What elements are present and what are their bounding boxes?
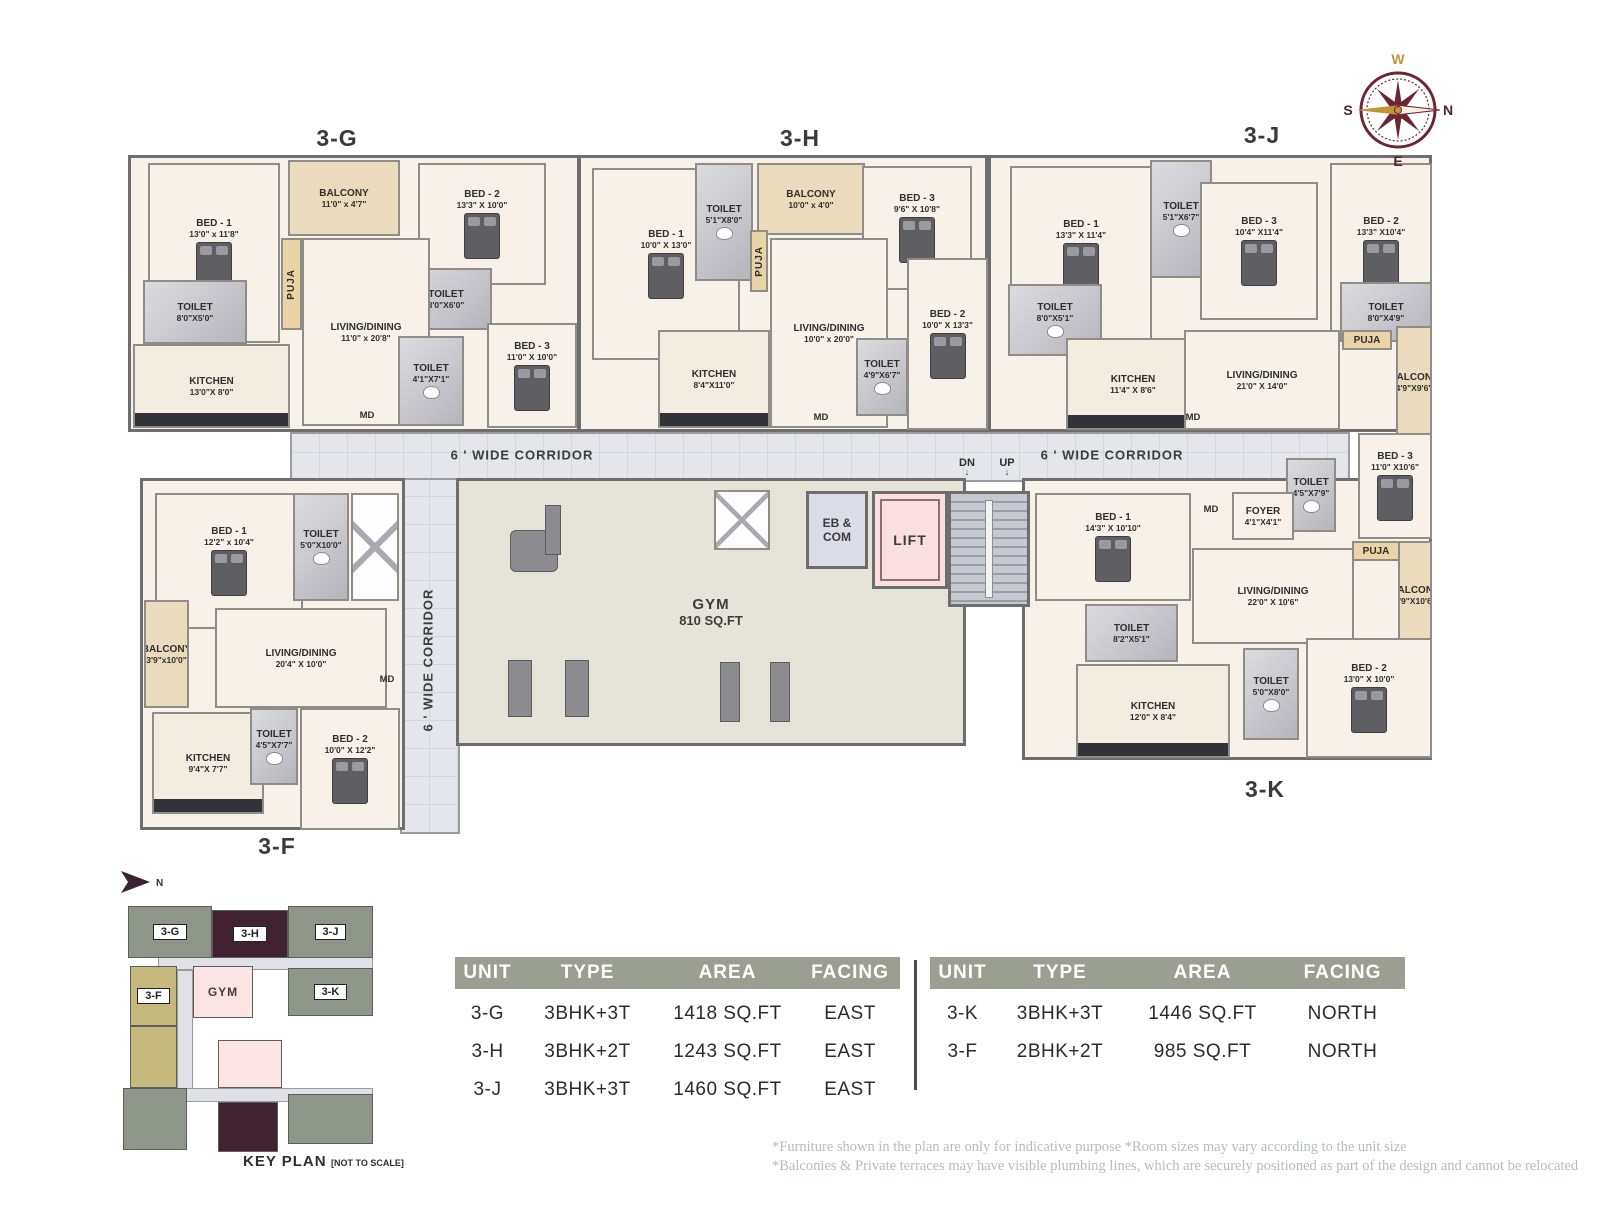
room-name: BALCONY <box>786 189 835 200</box>
room-dimension: 4'9"X9'6" <box>1396 383 1432 393</box>
key-plan-block-label: 3-H <box>233 926 267 942</box>
key-plan-block <box>130 1026 177 1088</box>
unit-cell: 3BHK+3T <box>520 1003 655 1025</box>
room-dimension: 8'4"X11'0" <box>694 380 735 390</box>
key-plan-block-gym: GYM <box>193 966 253 1018</box>
toilet-wc-icon <box>874 382 891 395</box>
room-dimension: 8'2"X5'1" <box>1113 634 1150 644</box>
bed-3-3-J: BED - 310'4" X11'4" <box>1200 182 1318 320</box>
room-name: PUJA <box>1354 335 1381 346</box>
unit-label-3-G: 3-G <box>316 125 357 152</box>
compass-center-icon <box>1394 106 1401 113</box>
bed-icon <box>1063 243 1099 289</box>
unit-label-3-H: 3-H <box>780 125 820 152</box>
unit-table-right: UNITTYPEAREAFACING 3-K3BHK+3T1446 SQ.FTN… <box>930 957 1405 1071</box>
unit-cell: 3-H <box>455 1041 520 1063</box>
key-plan-block <box>218 1040 282 1088</box>
balcony-3-K: BALCONY4'9"X10'6" <box>1398 541 1432 649</box>
compass-east-label: E <box>1393 153 1402 169</box>
unit-row-3-j: 3-J3BHK+3T1460 SQ.FTEAST <box>455 1071 900 1109</box>
room-dimension: 11'0" X 10'0" <box>507 352 557 362</box>
md-3-H: MD <box>806 408 836 426</box>
room-name: BED - 3 <box>899 193 935 204</box>
room-name: LIVING/DINING <box>330 322 401 333</box>
room-name: MD <box>1186 412 1201 423</box>
bed-icon <box>332 758 368 804</box>
staircase <box>948 491 1030 607</box>
key-plan-block <box>218 1102 278 1152</box>
room-dimension: 11'0" x 20'8" <box>341 333 390 343</box>
room-name: MD <box>360 410 375 421</box>
room-name: BED - 3 <box>1377 451 1413 462</box>
key-plan-block <box>123 1088 187 1150</box>
unit-cell: 1446 SQ.FT <box>1125 1003 1280 1025</box>
toilet-3-K: TOILET5'0"X8'0" <box>1243 648 1299 740</box>
toilet-3-G: TOILET4'1"X7'1" <box>398 336 464 426</box>
room-name: KITCHEN <box>1111 374 1155 385</box>
room-dimension: 4'1"X7'1" <box>413 374 450 384</box>
column-header-type: TYPE <box>995 962 1125 984</box>
balcony-3-F: BALCONY3'9"x10'0" <box>144 600 189 708</box>
toilet-3-K: TOILET8'2"X5'1" <box>1085 604 1178 662</box>
key-plan-block-label: 3-F <box>137 988 170 1004</box>
room-name: MD <box>1204 504 1219 515</box>
unit-cell: 985 SQ.FT <box>1125 1041 1280 1063</box>
compass-south-label: S <box>1343 102 1352 118</box>
room-dimension: 10'0" X 12'2" <box>325 745 376 755</box>
md-3-G: MD <box>352 406 382 424</box>
room-dimension: 13'0"X 8'0" <box>190 387 234 397</box>
key-plan-subtitle: [NOT TO SCALE] <box>331 1158 404 1168</box>
room-dimension: 21'0" X 14'0" <box>1237 381 1288 391</box>
puja-3-J: PUJA <box>1342 330 1392 350</box>
balcony-3-G: BALCONY11'0" x 4'7" <box>288 160 400 236</box>
room-name: BED - 1 <box>211 526 247 537</box>
compass-west-label: W <box>1391 51 1405 67</box>
toilet-wc-icon <box>716 227 733 240</box>
room-dimension: 5'0"X10'0" <box>300 540 341 550</box>
room-dimension: 5'0"X8'0" <box>1253 687 1290 697</box>
column-header-unit: UNIT <box>930 962 995 984</box>
puja-3-H: PUJA <box>750 230 768 292</box>
gym-equipment-icon <box>508 660 532 717</box>
toilet-3-H: TOILET4'9"X6'7" <box>856 338 908 416</box>
lift-room: LIFT <box>872 491 948 589</box>
room-name: TOILET <box>1163 201 1198 212</box>
kitchen-3-G: KITCHEN13'0"X 8'0" <box>133 344 290 428</box>
room-dimension: 8'0"X6'0" <box>428 300 465 310</box>
unit-cell: 3-K <box>930 1003 995 1025</box>
unit-cell: NORTH <box>1280 1003 1405 1025</box>
room-dimension: 4'1"X4'1" <box>1245 517 1282 527</box>
column-header-area: AREA <box>1125 962 1280 984</box>
bed-icon <box>930 333 966 379</box>
toilet-wc-icon <box>313 552 330 565</box>
room-dimension: 13'3" X 11'4" <box>1056 230 1106 240</box>
room-name: KITCHEN <box>1131 701 1175 712</box>
room-name: TOILET <box>303 529 338 540</box>
foyer-3-K: FOYER4'1"X4'1" <box>1232 492 1294 540</box>
gym-equipment-icon <box>720 662 740 722</box>
bed-icon <box>899 217 935 263</box>
puja-3-G: PUJA <box>281 238 302 330</box>
room-dimension: 10'0" X 13'3" <box>922 320 973 330</box>
md-3-F: MD <box>372 670 402 688</box>
key-plan-block-label: 3-K <box>314 984 348 1000</box>
balcony-3-J: BALCONY4'9"X9'6" <box>1396 326 1432 438</box>
puja-3-K: PUJA <box>1352 541 1400 561</box>
key-plan-block-3-g: 3-G <box>128 906 212 958</box>
key-plan-block-label: 3-G <box>153 924 187 940</box>
toilet-wc-icon <box>423 386 440 399</box>
stairs-down-label: DN <box>959 457 975 475</box>
room-name: BED - 1 <box>648 229 684 240</box>
room-name: FOYER <box>1246 506 1280 517</box>
room-dimension: 11'4" X 8'6" <box>1110 385 1156 395</box>
bed-icon <box>1241 240 1277 286</box>
md-3-K: MD <box>1196 500 1226 518</box>
room-dimension: 8'0"X5'1" <box>1037 313 1074 323</box>
unit-label-3-K: 3-K <box>1245 776 1285 803</box>
room-dimension: 10'0" x 20'0" <box>804 334 854 344</box>
room-name: BALCONY <box>1398 585 1432 596</box>
room-dimension: 8'0"X5'0" <box>177 313 214 323</box>
bed-icon <box>1095 536 1131 582</box>
room-name: PUJA <box>754 246 765 277</box>
living-dining-3-K: LIVING/DINING22'0" X 10'6" <box>1192 548 1354 644</box>
room-dimension: 13'0" X 10'0" <box>1344 674 1395 684</box>
room-name: TOILET <box>1037 302 1072 313</box>
bed-icon <box>514 365 550 411</box>
unit-row-3-h: 3-H3BHK+2T1243 SQ.FTEAST <box>455 1033 900 1071</box>
room-dimension: 4'5"X7'7" <box>256 740 293 750</box>
room-name: MD <box>380 674 395 685</box>
toilet-wc-icon <box>1047 325 1064 338</box>
room-dimension: 4'5"X7'9" <box>1293 488 1330 498</box>
room-dimension: 12'2" x 10'4" <box>204 537 254 547</box>
room-name: LIVING/DINING <box>1226 370 1297 381</box>
md-3-J: MD <box>1178 408 1208 426</box>
room-name: TOILET <box>1253 676 1288 687</box>
room-dimension: 3'9"x10'0" <box>146 655 186 665</box>
room-name: TOILET <box>1368 302 1403 313</box>
bed-2-3-F: BED - 210'0" X 12'2" <box>300 708 400 830</box>
unit-table-left-body: 3-G3BHK+3T1418 SQ.FTEAST3-H3BHK+2T1243 S… <box>455 989 900 1109</box>
room-dimension: 20'4" X 10'0" <box>276 659 327 669</box>
room-name: TOILET <box>428 289 463 300</box>
toilet-wc-icon <box>1263 699 1280 712</box>
bed-icon <box>1363 240 1399 286</box>
bed-2-3-K: BED - 213'0" X 10'0" <box>1306 638 1432 758</box>
room-dimension: 14'3" X 10'10" <box>1085 523 1141 533</box>
room-name: TOILET <box>177 302 212 313</box>
unit-cell: 3-F <box>930 1041 995 1063</box>
unit-cell: 3-J <box>455 1079 520 1101</box>
gym-equipment-icon <box>770 662 790 722</box>
room-name: BED - 2 <box>1351 663 1387 674</box>
room-dimension: 13'3" X 10'0" <box>457 200 508 210</box>
bed-icon <box>1351 687 1387 733</box>
key-plan-block <box>177 970 193 1096</box>
unit-cell: 1418 SQ.FT <box>655 1003 800 1025</box>
room-name: LIVING/DINING <box>793 323 864 334</box>
key-plan-block-3-f: 3-F <box>130 966 177 1026</box>
room-name: TOILET <box>706 204 741 215</box>
unit-cell: 1243 SQ.FT <box>655 1041 800 1063</box>
room-name: PUJA <box>1363 546 1390 557</box>
key-plan-caption: KEY PLAN [NOT TO SCALE] <box>243 1153 404 1171</box>
unit-row-3-f: 3-F2BHK+2T985 SQ.FTNORTH <box>930 1033 1405 1071</box>
room-name: TOILET <box>1114 623 1149 634</box>
unit-label-3-J: 3-J <box>1244 122 1280 149</box>
unit-cell: NORTH <box>1280 1041 1405 1063</box>
shaft-3-F <box>351 493 399 601</box>
room-name: BED - 3 <box>1241 216 1277 227</box>
key-plan-block-label: 3-J <box>315 924 347 940</box>
stairs-up-label: UP <box>999 457 1014 475</box>
room-name: MD <box>814 412 829 423</box>
room-dimension: 5'1"X8'0" <box>706 215 743 225</box>
toilet-wc-icon <box>1303 500 1320 513</box>
bed-icon <box>648 253 684 299</box>
room-name: BED - 1 <box>196 218 232 229</box>
room-name: LIVING/DINING <box>265 648 336 659</box>
balcony-3-H: BALCONY10'0" x 4'0" <box>757 163 865 235</box>
unit-cell: 3BHK+3T <box>520 1079 655 1101</box>
floor-plan-canvas: W E S N 6 ' WIDE CORRIDOR 6 ' WIDE CORRI… <box>0 0 1600 1223</box>
unit-row-3-g: 3-G3BHK+3T1418 SQ.FTEAST <box>455 995 900 1033</box>
bed-2-3-H: BED - 210'0" X 13'3" <box>907 258 988 430</box>
kitchen-3-K: KITCHEN12'0" X 8'4" <box>1076 664 1230 758</box>
room-name: BED - 2 <box>332 734 368 745</box>
room-name: BED - 2 <box>1363 216 1399 227</box>
kitchen-3-F: KITCHEN9'4"X 7'7" <box>152 712 264 814</box>
utility-shaft <box>714 490 770 550</box>
room-name: TOILET <box>256 729 291 740</box>
room-name: PUJA <box>286 269 297 300</box>
gym-equipment-icon <box>565 660 589 717</box>
room-name: BALCONY <box>144 644 189 655</box>
unit-label-3-F: 3-F <box>258 833 296 860</box>
disclaimer-line-1: *Furniture shown in the plan are only fo… <box>772 1138 1578 1157</box>
room-dimension: 10'4" X11'4" <box>1235 227 1283 237</box>
bed-icon <box>1377 475 1413 521</box>
unit-cell: 3-G <box>455 1003 520 1025</box>
room-dimension: 11'0" X10'6" <box>1371 462 1419 472</box>
room-dimension: 22'0" X 10'6" <box>1248 597 1299 607</box>
room-name: BALCONY <box>1396 372 1432 383</box>
room-dimension: 8'0"X4'9" <box>1368 313 1405 323</box>
kitchen-3-H: KITCHEN8'4"X11'0" <box>658 330 770 428</box>
toilet-3-F: TOILET4'5"X7'7" <box>250 708 298 785</box>
room-name: KITCHEN <box>692 369 736 380</box>
disclaimer-notes: *Furniture shown in the plan are only fo… <box>772 1138 1578 1176</box>
key-plan-title: KEY PLAN <box>243 1153 327 1170</box>
toilet-wc-icon <box>1173 224 1190 237</box>
toilet-3-G: TOILET8'0"X5'0" <box>143 280 247 344</box>
room-name: BED - 2 <box>930 309 966 320</box>
unit-cell: EAST <box>800 1041 900 1063</box>
room-name: BALCONY <box>319 188 368 199</box>
column-header-facing: FACING <box>1280 962 1405 984</box>
key-plan-block <box>288 1094 373 1144</box>
toilet-wc-icon <box>266 752 283 765</box>
room-name: BED - 1 <box>1063 219 1099 230</box>
column-header-area: AREA <box>655 962 800 984</box>
room-dimension: 9'4"X 7'7" <box>188 764 227 774</box>
unit-table-left: UNITTYPEAREAFACING 3-G3BHK+3T1418 SQ.FTE… <box>455 957 900 1109</box>
unit-cell: EAST <box>800 1003 900 1025</box>
key-plan-block-3-j: 3-J <box>288 906 373 958</box>
toilet-3-H: TOILET5'1"X8'0" <box>695 163 753 281</box>
eb-com-room: EB & COM <box>806 491 868 569</box>
room-dimension: 9'6" X 10'8" <box>894 204 940 214</box>
room-dimension: 13'3" X10'4" <box>1357 227 1406 237</box>
room-dimension: 5'1"X6'7" <box>1163 212 1200 222</box>
bed-icon <box>464 213 500 259</box>
unit-cell: 1460 SQ.FT <box>655 1079 800 1101</box>
disclaimer-line-2: *Balconies & Private terraces may have v… <box>772 1157 1578 1176</box>
room-name: BED - 1 <box>1095 512 1131 523</box>
room-dimension: 10'0" X 13'0" <box>641 240 692 250</box>
room-name: BED - 3 <box>514 341 550 352</box>
room-name: TOILET <box>1293 477 1328 488</box>
table-divider <box>914 960 917 1090</box>
room-name: LIVING/DINING <box>1237 586 1308 597</box>
unit-table-left-header: UNITTYPEAREAFACING <box>455 957 900 989</box>
compass-rose: W E S N <box>1338 48 1458 170</box>
bed-3-3-K: BED - 311'0" X10'6" <box>1358 433 1432 539</box>
room-dimension: 4'9"X6'7" <box>864 370 901 380</box>
key-plan-north-arrow-icon: N <box>118 868 164 896</box>
unit-table-right-body: 3-K3BHK+3T1446 SQ.FTNORTH3-F2BHK+2T985 S… <box>930 989 1405 1071</box>
room-name: KITCHEN <box>186 753 230 764</box>
room-dimension: 4'9"X10'6" <box>1398 596 1432 606</box>
column-header-type: TYPE <box>520 962 655 984</box>
room-dimension: 12'0" X 8'4" <box>1130 712 1176 722</box>
unit-cell: 2BHK+2T <box>995 1041 1125 1063</box>
room-name: KITCHEN <box>189 376 233 387</box>
bed-3-3-G: BED - 311'0" X 10'0" <box>487 323 577 428</box>
unit-row-3-k: 3-K3BHK+3T1446 SQ.FTNORTH <box>930 995 1405 1033</box>
room-name: BED - 2 <box>464 189 500 200</box>
room-dimension: 10'0" x 4'0" <box>788 200 833 210</box>
room-name: TOILET <box>864 359 899 370</box>
key-plan-block-3-k: 3-K <box>288 968 373 1016</box>
unit-cell: 3BHK+3T <box>995 1003 1125 1025</box>
bed-icon <box>211 550 247 596</box>
room-dimension: 13'0" x 11'8" <box>189 229 238 239</box>
gym-equipment-icon <box>545 505 561 555</box>
room-name: TOILET <box>413 363 448 374</box>
unit-cell: EAST <box>800 1079 900 1101</box>
living-dining-3-F: LIVING/DINING20'4" X 10'0" <box>215 608 387 708</box>
bed-1-3-K: BED - 114'3" X 10'10" <box>1035 493 1191 601</box>
bed-2-3-G: BED - 213'3" X 10'0" <box>418 163 546 285</box>
unit-table-right-header: UNITTYPEAREAFACING <box>930 957 1405 989</box>
unit-cell: 3BHK+2T <box>520 1041 655 1063</box>
column-header-unit: UNIT <box>455 962 520 984</box>
key-plan-north-label: N <box>156 878 163 889</box>
toilet-3-F: TOILET5'0"X10'0" <box>293 493 349 601</box>
room-dimension: 11'0" x 4'7" <box>322 199 367 209</box>
key-plan-block-3-h: 3-H <box>212 910 288 958</box>
compass-north-label: N <box>1443 102 1453 118</box>
column-header-facing: FACING <box>800 962 900 984</box>
key-plan-block-label: GYM <box>208 985 238 999</box>
